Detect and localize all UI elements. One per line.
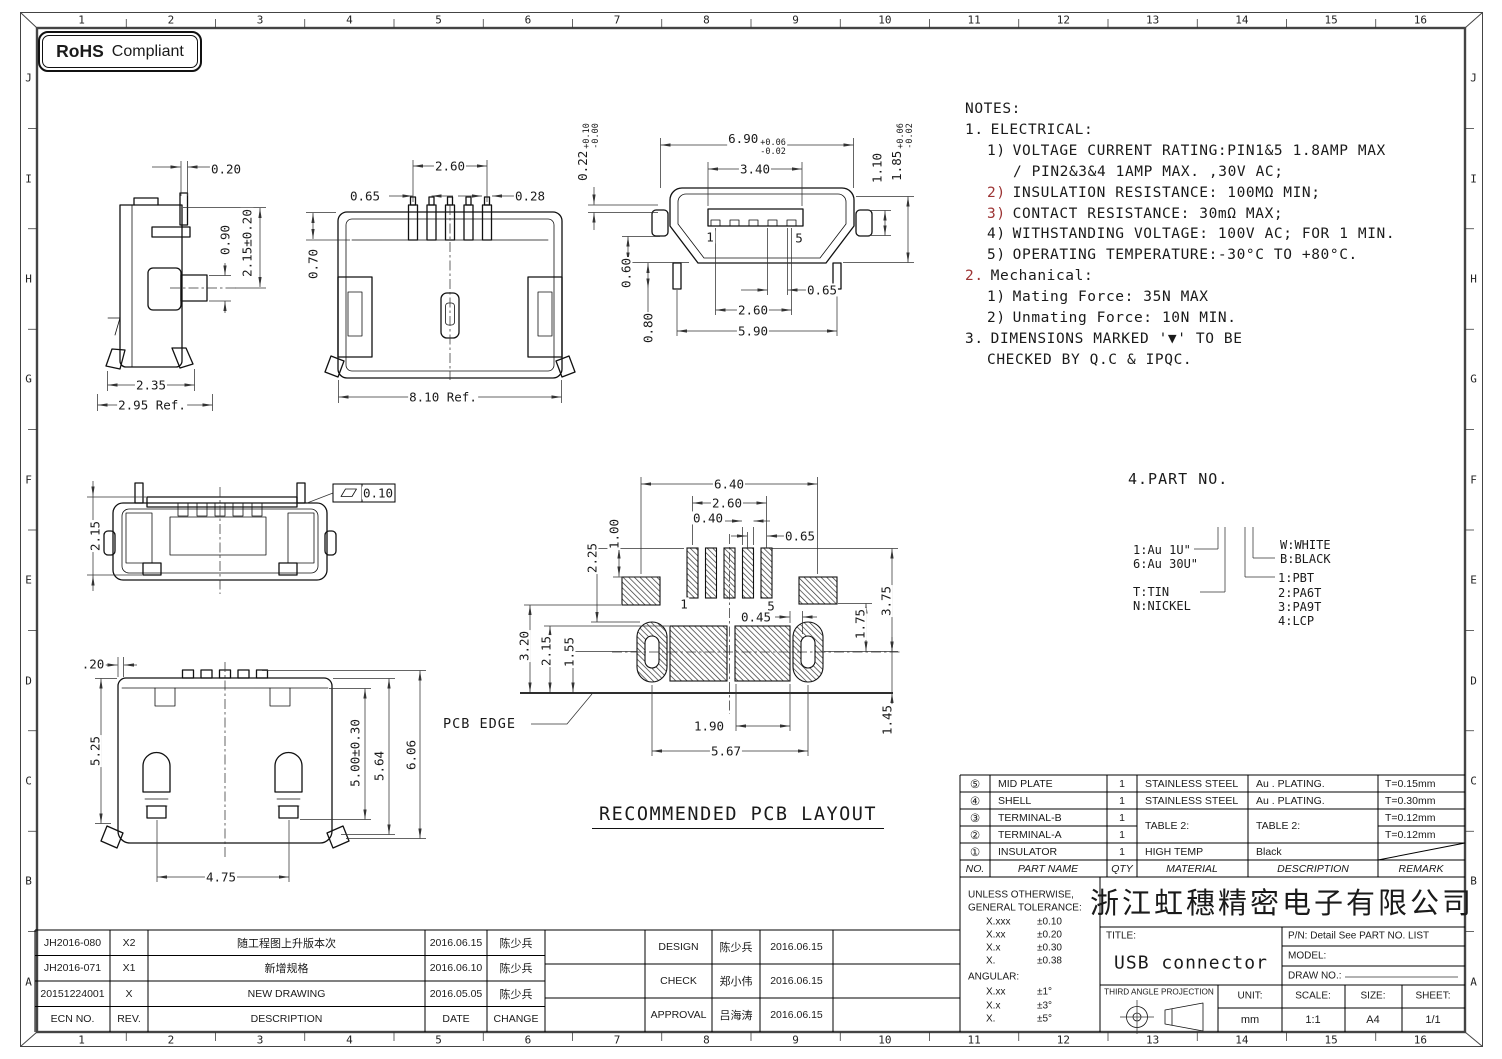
approval-role: CHECK bbox=[660, 975, 697, 987]
draw-no-label: DRAW NO.: bbox=[1288, 971, 1342, 982]
parts-material: HIGH TEMP bbox=[1145, 846, 1203, 858]
parts-desc: Au . PLATING. bbox=[1256, 778, 1325, 790]
tolerance-key: X.x bbox=[986, 1001, 1000, 1012]
dim-label: 0.28 bbox=[514, 189, 546, 202]
parts-remark: T=0.15mm bbox=[1385, 778, 1435, 790]
rev-date: 2016.06.15 bbox=[430, 937, 483, 949]
approval-date: 2016.06.15 bbox=[770, 941, 823, 953]
grid-col-label: 13 bbox=[1146, 1033, 1159, 1046]
parts-no: ⑤ bbox=[970, 777, 980, 791]
grid-col-label: 2 bbox=[168, 13, 175, 26]
grid-row-label: B bbox=[25, 875, 32, 888]
tolerance-val: ±0.30 bbox=[1037, 943, 1062, 954]
dim-label: 6.40 bbox=[713, 477, 745, 490]
dim-label: 8.10 Ref. bbox=[408, 390, 478, 403]
unit-label: UNIT: bbox=[1238, 991, 1263, 1002]
dim-label: 0.90 bbox=[218, 224, 231, 256]
parts-name: TERMINAL-B bbox=[998, 812, 1062, 824]
dim-label: 3.75 bbox=[879, 585, 892, 617]
part-no-title: 4.PART NO. bbox=[1128, 470, 1228, 488]
tolerance-key: X.xxx bbox=[986, 917, 1010, 928]
pin-number-label: 1 bbox=[705, 230, 715, 243]
grid-row-label: H bbox=[25, 273, 32, 286]
parts-name: TERMINAL-A bbox=[998, 829, 1062, 841]
parts-qty: 1 bbox=[1119, 795, 1125, 807]
grid-col-label: 2 bbox=[168, 1033, 175, 1046]
grid-col-label: 6 bbox=[525, 13, 532, 26]
parts-header: QTY bbox=[1111, 863, 1133, 875]
legend-item: T:TIN bbox=[1133, 585, 1169, 599]
note-text: Mechanical: bbox=[991, 268, 1094, 284]
rev-rev: X bbox=[125, 988, 132, 1000]
note-text: VOLTAGE CURRENT RATING:PIN1&5 1.8AMP MAX bbox=[1013, 143, 1386, 159]
dim-main: 6.90 bbox=[728, 131, 758, 146]
unit-value: mm bbox=[1241, 1014, 1259, 1026]
dim-label: 0.22+0.10-0.00 bbox=[576, 122, 602, 182]
note-line: 1.ELECTRICAL: bbox=[965, 120, 1470, 141]
legend-item: 2:PA6T bbox=[1278, 586, 1321, 600]
rev-header: DATE bbox=[442, 1013, 469, 1025]
sheet-value: 1/1 bbox=[1425, 1014, 1440, 1026]
grid-row-label: J bbox=[1470, 72, 1477, 85]
note-line: 1)Mating Force: 35N MAX bbox=[965, 287, 1470, 308]
legend-item: B:BLACK bbox=[1280, 552, 1331, 566]
note-text: WITHSTANDING VOLTAGE: 100V AC; FOR 1 MIN… bbox=[1013, 226, 1396, 242]
dim-label: 5.67 bbox=[710, 744, 742, 757]
parts-material: STAINLESS STEEL bbox=[1145, 778, 1238, 790]
tolerance-angular-label: ANGULAR: bbox=[968, 972, 1019, 983]
size-value: A4 bbox=[1366, 1014, 1379, 1026]
dim-label: 4.75 bbox=[205, 870, 237, 883]
note-text: / PIN2&3&4 1AMP MAX. ,30V AC; bbox=[1013, 164, 1284, 180]
parts-remark: T=0.12mm bbox=[1385, 812, 1435, 824]
tolerance-note: GENERAL TOLERANCE: bbox=[968, 903, 1082, 914]
legend-item: 1:PBT bbox=[1278, 571, 1314, 585]
grid-row-label: D bbox=[1470, 674, 1477, 687]
rev-rev: X2 bbox=[123, 937, 136, 949]
parts-material-merged: TABLE 2: bbox=[1145, 820, 1189, 832]
dim-label: 2.35 bbox=[135, 378, 167, 391]
dim-label: 5.25 bbox=[88, 735, 101, 767]
parts-material: STAINLESS STEEL bbox=[1145, 795, 1238, 807]
dim-label: 2.15 bbox=[539, 635, 552, 667]
tolerance-val: ±1° bbox=[1037, 987, 1052, 998]
tolerance-key: X.xx bbox=[986, 930, 1005, 941]
grid-row-label: F bbox=[1470, 473, 1477, 486]
view-rear-geometry bbox=[87, 481, 395, 594]
size-label: SIZE: bbox=[1360, 991, 1385, 1002]
dim-label: 3.40 bbox=[739, 162, 771, 175]
grid-col-label: 1 bbox=[78, 1033, 85, 1046]
note-num: 3. bbox=[965, 329, 984, 350]
company-name: 浙江虹穗精密电子有限公司 bbox=[1090, 880, 1474, 922]
rev-date: 2016.05.05 bbox=[430, 988, 483, 1000]
parts-desc: Au . PLATING. bbox=[1256, 795, 1325, 807]
dim-label: 0.65 bbox=[349, 189, 381, 202]
grid-row-label: E bbox=[1470, 574, 1477, 587]
third-angle-projection-icon bbox=[1120, 1000, 1203, 1034]
grid-col-label: 16 bbox=[1414, 13, 1427, 26]
tolerance-val: ±3° bbox=[1037, 1001, 1052, 1012]
grid-row-label: D bbox=[25, 674, 32, 687]
parts-no: ③ bbox=[970, 811, 980, 825]
dim-label: 1.45 bbox=[880, 704, 893, 736]
parts-desc: Black bbox=[1256, 846, 1282, 858]
grid-row-label: F bbox=[25, 473, 32, 486]
notes-title: NOTES: bbox=[965, 99, 1470, 120]
grid-row-label: A bbox=[25, 975, 32, 988]
legend-item: N:NICKEL bbox=[1133, 599, 1191, 613]
model-label: MODEL: bbox=[1288, 951, 1326, 962]
dim-label: 2.15±0.20 bbox=[240, 208, 253, 278]
dim-label: 2.60 bbox=[737, 303, 769, 316]
parts-name: SHELL bbox=[998, 795, 1031, 807]
pn-note: P/N: Detail See PART NO. LIST bbox=[1288, 931, 1429, 942]
note-line: 4)WITHSTANDING VOLTAGE: 100V AC; FOR 1 M… bbox=[965, 224, 1470, 245]
approval-date: 2016.06.15 bbox=[770, 975, 823, 987]
parts-qty: 1 bbox=[1119, 812, 1125, 824]
grid-col-label: 9 bbox=[792, 1033, 799, 1046]
dim-label: 6.06 bbox=[404, 739, 417, 771]
grid-row-label: J bbox=[25, 72, 32, 85]
grid-row-label: E bbox=[25, 574, 32, 587]
note-line: 1)VOLTAGE CURRENT RATING:PIN1&5 1.8AMP M… bbox=[965, 141, 1470, 162]
rev-desc: NEW DRAWING bbox=[248, 988, 326, 1000]
rev-header: REV. bbox=[117, 1013, 141, 1025]
dim-label: 0.80 bbox=[641, 312, 654, 344]
notes-block: NOTES: 1.ELECTRICAL: 1)VOLTAGE CURRENT R… bbox=[965, 99, 1470, 371]
grid-col-label: 12 bbox=[1057, 1033, 1070, 1046]
grid-col-label: 3 bbox=[257, 1033, 264, 1046]
note-line: CHECKED BY Q.C & IPQC. bbox=[965, 350, 1470, 371]
grid-col-label: 5 bbox=[435, 1033, 442, 1046]
rev-date: 2016.06.10 bbox=[430, 962, 483, 974]
note-text: INSULATION RESISTANCE: 100MΩ MIN; bbox=[1013, 185, 1321, 201]
dim-label: 0.65 bbox=[806, 283, 838, 296]
grid-row-label: G bbox=[25, 373, 32, 386]
dim-label: 1.00 bbox=[607, 518, 620, 550]
flatness-tolerance-value: 0.10 bbox=[362, 486, 394, 499]
parts-qty: 1 bbox=[1119, 846, 1125, 858]
parts-header: DESCRIPTION bbox=[1277, 863, 1349, 875]
rev-ecn: JH2016-071 bbox=[44, 962, 101, 974]
legend-item: 6:Au 30U" bbox=[1133, 557, 1198, 571]
rev-by: 陈少兵 bbox=[500, 986, 533, 1002]
dim-label: 0.20 bbox=[210, 162, 242, 175]
note-line: 5)OPERATING TEMPERATURE:-30°C TO +80°C. bbox=[965, 245, 1470, 266]
parts-no: ① bbox=[970, 845, 980, 859]
note-line: 2)Unmating Force: 10N MIN. bbox=[965, 308, 1470, 329]
tolerance-val: ±0.38 bbox=[1037, 956, 1062, 967]
grid-col-label: 3 bbox=[257, 13, 264, 26]
parts-header: REMARK bbox=[1399, 863, 1444, 875]
note-text: CONTACT RESISTANCE: 30mΩ MAX; bbox=[1013, 206, 1284, 222]
note-line: 3.DIMENSIONS MARKED '▼' TO BE bbox=[965, 329, 1470, 350]
dim-label: 2.95 Ref. bbox=[117, 398, 187, 411]
approval-date: 2016.06.15 bbox=[770, 1009, 823, 1021]
legend-item: 3:PA9T bbox=[1278, 600, 1321, 614]
approval-name: 郑小伟 bbox=[720, 973, 753, 989]
parts-qty: 1 bbox=[1119, 778, 1125, 790]
rev-ecn: JH2016-080 bbox=[44, 937, 101, 949]
note-line: 3)CONTACT RESISTANCE: 30mΩ MAX; bbox=[965, 204, 1470, 225]
grid-row-label: H bbox=[1470, 273, 1477, 286]
grid-col-label: 7 bbox=[614, 1033, 621, 1046]
note-num: 1) bbox=[987, 141, 1006, 162]
dim-main: 1.85 bbox=[889, 151, 904, 181]
rohs-badge: RoHS Compliant bbox=[38, 31, 202, 72]
grid-col-label: 14 bbox=[1235, 1033, 1248, 1046]
note-text: CHECKED BY Q.C & IPQC. bbox=[987, 352, 1192, 368]
parts-header: NO. bbox=[966, 863, 985, 875]
dim-label: .20 bbox=[81, 657, 106, 670]
parts-name: MID PLATE bbox=[998, 778, 1053, 790]
dim-label: 1.55 bbox=[562, 636, 575, 668]
note-text: Unmating Force: 10N MIN. bbox=[1013, 310, 1237, 326]
rev-rev: X1 bbox=[123, 962, 136, 974]
projection-label: THIRD ANGLE PROJECTION bbox=[1104, 988, 1214, 997]
scale-value: 1:1 bbox=[1305, 1014, 1320, 1026]
pcb-edge-label: PCB EDGE bbox=[443, 716, 516, 732]
dim-label: 2.15 bbox=[88, 520, 101, 552]
tolerance-key: X.x bbox=[986, 943, 1000, 954]
part-no-legend-lines bbox=[1194, 527, 1275, 592]
rev-desc: 随工程图上升版本次 bbox=[237, 935, 336, 951]
legend-item: 1:Au 1U" bbox=[1133, 543, 1191, 557]
parts-no: ④ bbox=[970, 794, 980, 808]
note-num: 5) bbox=[987, 245, 1006, 266]
grid-col-label: 6 bbox=[525, 1033, 532, 1046]
note-line: / PIN2&3&4 1AMP MAX. ,30V AC; bbox=[965, 162, 1470, 183]
approval-name: 吕海涛 bbox=[720, 1007, 753, 1023]
note-line: 2.Mechanical: bbox=[965, 266, 1470, 287]
grid-row-label: I bbox=[25, 172, 32, 185]
grid-col-label: 8 bbox=[703, 1033, 710, 1046]
tolerance-val: ±0.20 bbox=[1037, 930, 1062, 941]
approval-name: 陈少兵 bbox=[720, 939, 753, 955]
grid-row-label: A bbox=[1470, 975, 1477, 988]
note-text: DIMENSIONS MARKED '▼' TO BE bbox=[991, 331, 1243, 347]
grid-row-label: I bbox=[1470, 172, 1477, 185]
drawing-sheet: 1 2 3 4 5 6 7 8 9 10 11 12 13 14 15 16 1… bbox=[0, 0, 1502, 1059]
grid-col-label: 11 bbox=[967, 1033, 980, 1046]
grid-col-label: 1 bbox=[78, 13, 85, 26]
dim-label: 0.65 bbox=[784, 529, 816, 542]
pcb-layout-title: RECOMMENDED PCB LAYOUT bbox=[592, 804, 884, 829]
note-line: 2)INSULATION RESISTANCE: 100MΩ MIN; bbox=[965, 183, 1470, 204]
dim-main: 0.22 bbox=[575, 151, 590, 181]
dim-label: 2.25 bbox=[585, 542, 598, 574]
grid-col-label: 13 bbox=[1146, 13, 1159, 26]
view-side-geometry bbox=[98, 161, 267, 411]
pin-number-label: 5 bbox=[766, 599, 776, 612]
dim-label: 5.90 bbox=[737, 324, 769, 337]
grid-col-label: 10 bbox=[878, 1033, 891, 1046]
dim-label: 1.85+0.06-0.02 bbox=[890, 122, 916, 182]
grid-row-label: C bbox=[25, 775, 32, 788]
approval-role: APPROVAL bbox=[651, 1009, 707, 1021]
note-text: OPERATING TEMPERATURE:-30°C TO +80°C. bbox=[1013, 247, 1358, 263]
dim-tolerance: +0.06-0.02 bbox=[897, 123, 916, 149]
rev-ecn: 20151224001 bbox=[40, 988, 104, 1000]
grid-col-label: 14 bbox=[1235, 13, 1248, 26]
parts-name: INSULATOR bbox=[998, 846, 1057, 858]
dim-label: 5.64 bbox=[372, 750, 385, 782]
parts-remark: T=0.30mm bbox=[1385, 795, 1435, 807]
legend-item: W:WHITE bbox=[1280, 538, 1331, 552]
grid-col-label: 11 bbox=[967, 13, 980, 26]
rev-header: ECN NO. bbox=[51, 1013, 95, 1025]
parts-qty: 1 bbox=[1119, 829, 1125, 841]
grid-col-label: 5 bbox=[435, 13, 442, 26]
note-text: ELECTRICAL: bbox=[991, 122, 1094, 138]
grid-col-label: 15 bbox=[1324, 13, 1337, 26]
grid-col-label: 7 bbox=[614, 13, 621, 26]
grid-col-label: 4 bbox=[346, 1033, 353, 1046]
dim-label: 2.60 bbox=[711, 496, 743, 509]
dim-label: 1.75 bbox=[853, 608, 866, 640]
grid-col-label: 15 bbox=[1324, 1033, 1337, 1046]
grid-row-label: C bbox=[1470, 775, 1477, 788]
drawing-title: USB connector bbox=[1114, 953, 1268, 974]
tolerance-key: X. bbox=[986, 956, 995, 967]
dim-tolerance: +0.06-0.02 bbox=[760, 139, 786, 158]
rev-by: 陈少兵 bbox=[500, 960, 533, 976]
dim-label: 6.90+0.06-0.02 bbox=[727, 132, 787, 158]
rohs-label: Compliant bbox=[112, 43, 184, 61]
note-num: 4) bbox=[987, 224, 1006, 245]
legend-item: 4:LCP bbox=[1278, 614, 1314, 628]
grid-col-label: 8 bbox=[703, 13, 710, 26]
grid-col-label: 9 bbox=[792, 13, 799, 26]
pin-number-label: 5 bbox=[794, 231, 804, 244]
dim-label: 1.10 bbox=[870, 152, 883, 184]
tolerance-val: ±0.10 bbox=[1037, 917, 1062, 928]
grid-col-label: 10 bbox=[878, 13, 891, 26]
dim-label: 0.60 bbox=[619, 257, 632, 289]
scale-label: SCALE: bbox=[1295, 991, 1331, 1002]
note-num: 2) bbox=[987, 308, 1006, 329]
pin-number-label: 1 bbox=[679, 597, 689, 610]
note-num: 1. bbox=[965, 120, 984, 141]
rev-header: DESCRIPTION bbox=[251, 1013, 323, 1025]
dim-label: 2.60 bbox=[434, 159, 466, 172]
dim-label: 5.00±0.30 bbox=[348, 718, 361, 788]
rev-desc: 新增规格 bbox=[265, 960, 309, 976]
rohs-brand: RoHS bbox=[56, 41, 104, 62]
dim-label: 3.20 bbox=[517, 630, 530, 662]
grid-col-label: 4 bbox=[346, 13, 353, 26]
grid-col-label: 16 bbox=[1414, 1033, 1427, 1046]
dim-label: 0.40 bbox=[692, 511, 724, 524]
dim-label: 1.90 bbox=[693, 719, 725, 732]
tolerance-note: UNLESS OTHERWISE, bbox=[968, 890, 1074, 901]
parts-remark: T=0.12mm bbox=[1385, 829, 1435, 841]
note-num: 2. bbox=[965, 266, 984, 287]
tolerance-val: ±5° bbox=[1037, 1014, 1052, 1025]
grid-row-label: G bbox=[1470, 373, 1477, 386]
parts-no: ② bbox=[970, 828, 980, 842]
sheet-label: SHEET: bbox=[1415, 991, 1450, 1002]
dim-tolerance: +0.10-0.00 bbox=[583, 123, 602, 149]
rev-header: CHANGE bbox=[494, 1013, 539, 1025]
note-num: 1) bbox=[987, 287, 1006, 308]
rev-by: 陈少兵 bbox=[500, 935, 533, 951]
note-num: 3) bbox=[987, 204, 1006, 225]
dim-label: 0.70 bbox=[306, 248, 319, 280]
parts-desc-merged: TABLE 2: bbox=[1256, 820, 1300, 832]
parts-header: PART NAME bbox=[1018, 863, 1078, 875]
parts-header: MATERIAL bbox=[1166, 863, 1218, 875]
approval-role: DESIGN bbox=[658, 941, 698, 953]
note-num: 2) bbox=[987, 183, 1006, 204]
grid-col-label: 12 bbox=[1057, 13, 1070, 26]
note-text: Mating Force: 35N MAX bbox=[1013, 289, 1209, 305]
title-label: TITLE: bbox=[1106, 931, 1136, 942]
tolerance-key: X.xx bbox=[986, 987, 1005, 998]
tolerance-key: X. bbox=[986, 1014, 995, 1025]
